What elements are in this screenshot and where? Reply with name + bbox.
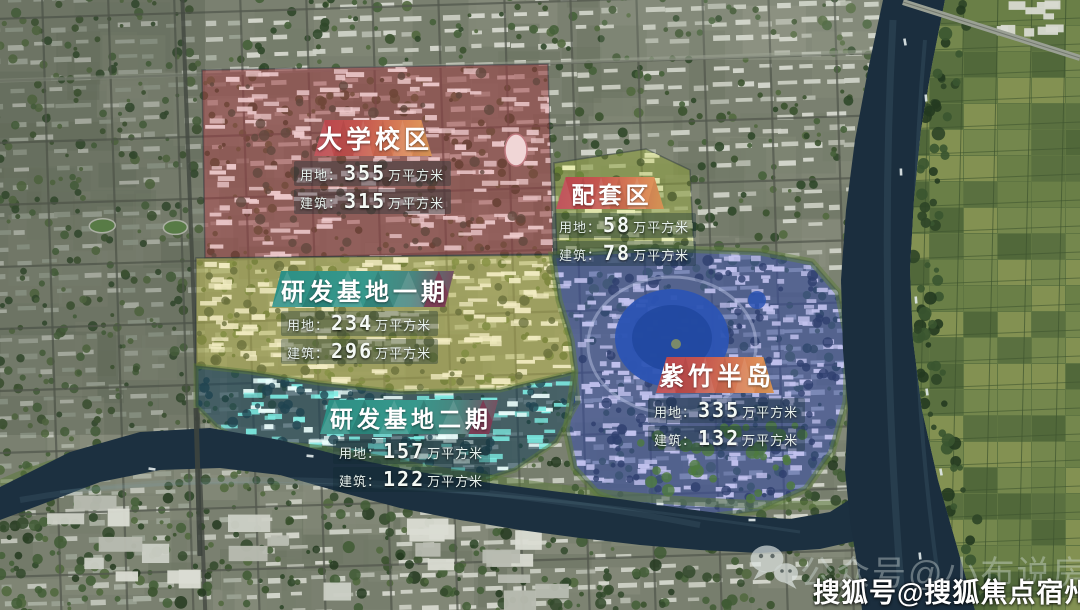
map-canvas (0, 0, 1080, 610)
satellite-map: 大学校区用地：355万平方米建筑：315万平方米配套区用地：58万平方米建筑：7… (0, 0, 1080, 610)
